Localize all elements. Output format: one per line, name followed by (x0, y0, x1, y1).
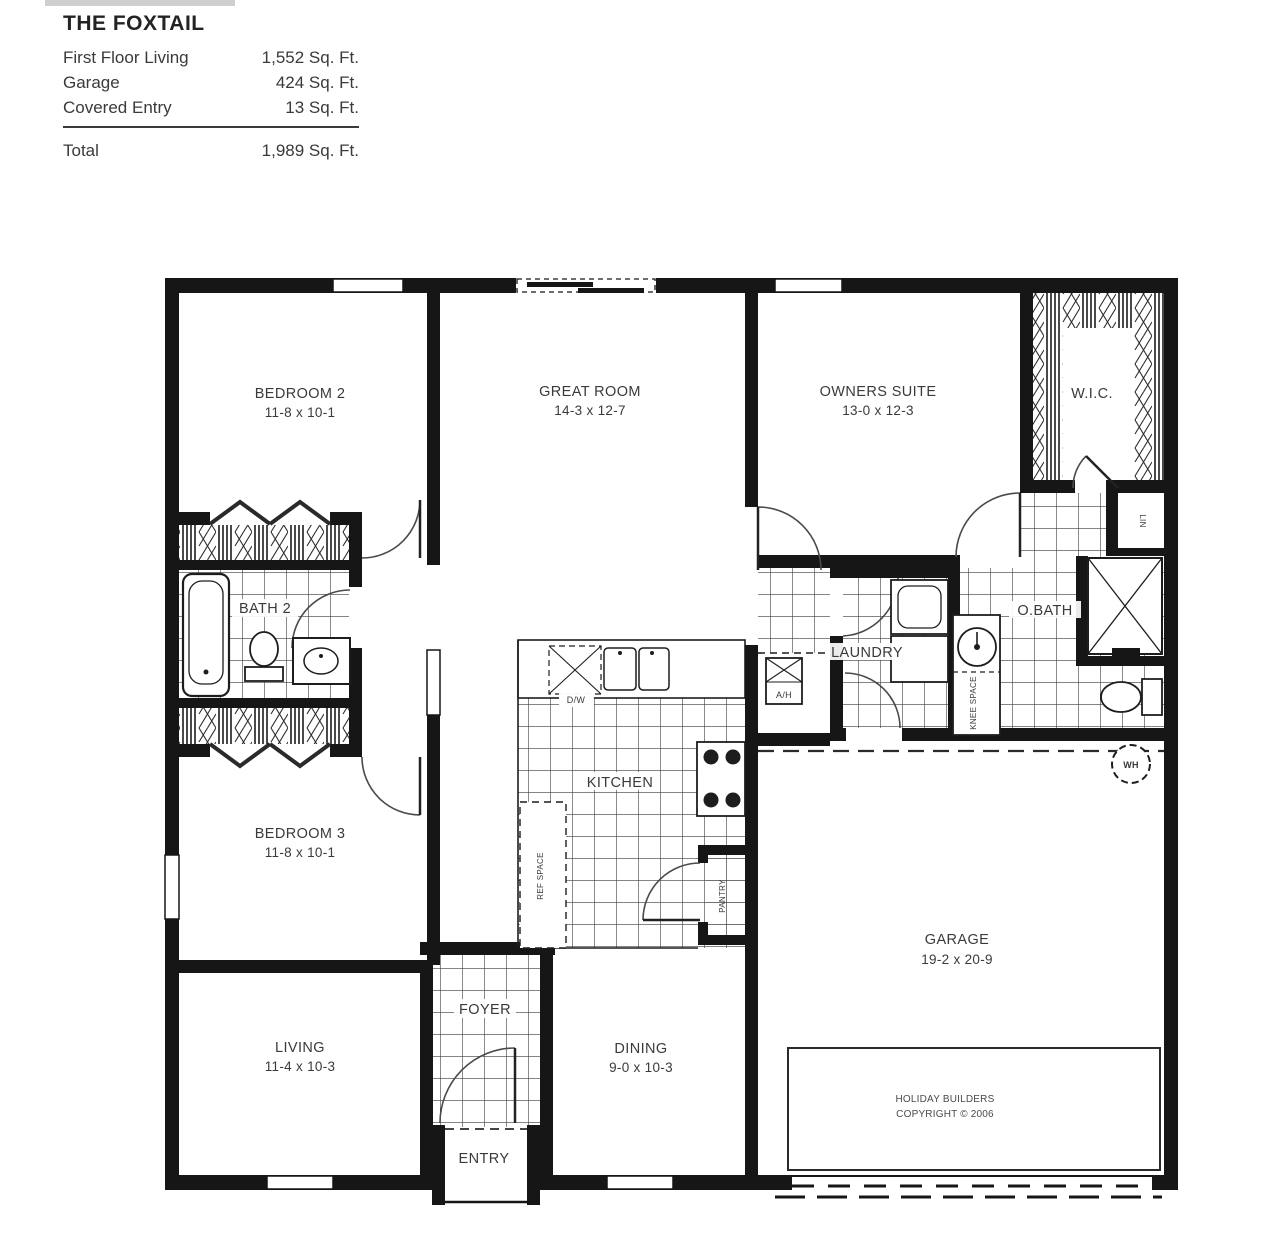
window-bedroom3 (165, 855, 179, 919)
room-label-foyer: FOYER (459, 1002, 511, 1018)
sqft-value: 424 Sq. Ft. (276, 70, 359, 95)
label-dishwasher: D/W (567, 695, 586, 705)
burner (704, 793, 719, 808)
room-dims-owners-suite: 13-0 x 12-3 (842, 403, 914, 418)
tiled-floors (178, 493, 1164, 1127)
air-handler-closet (758, 653, 830, 733)
label-water-heater: WH (1123, 760, 1139, 770)
room-label-garage: GARAGE (925, 932, 989, 948)
window-living (267, 1176, 333, 1189)
sink (304, 648, 338, 674)
floor-plan-page: THE FOXTAIL First Floor Living 1,552 Sq.… (0, 0, 1280, 1248)
sqft-label: First Floor Living (63, 45, 189, 70)
closet-hatch (178, 525, 349, 560)
sqft-row-covered-entry: Covered Entry 13 Sq. Ft. (63, 95, 359, 120)
sqft-row-living: First Floor Living 1,552 Sq. Ft. (63, 45, 359, 70)
faucet (319, 654, 323, 658)
hall-floor (758, 568, 830, 653)
toilet-bowl (250, 632, 278, 666)
room-dims-great-room: 14-3 x 12-7 (554, 403, 626, 418)
room-dims-garage: 19-2 x 20-9 (921, 952, 993, 967)
total-divider (63, 126, 359, 128)
room-dims-dining: 9-0 x 10-3 (609, 1060, 673, 1075)
burner (704, 750, 719, 765)
washer-door (898, 586, 941, 628)
window-bedroom2 (333, 279, 403, 292)
room-dims-bedroom2: 11-8 x 10-1 (265, 405, 336, 420)
door-arc-bedroom2 (362, 500, 420, 558)
label-linen: LIN (1138, 514, 1147, 527)
sink-faucet (618, 651, 622, 655)
copyright-line1: HOLIDAY BUILDERS (896, 1094, 995, 1105)
toilet-tank (245, 667, 283, 681)
room-label-great-room: GREAT ROOM (539, 384, 641, 400)
wic-shelf-right (1134, 328, 1164, 480)
room-dims-living: 11-4 x 10-3 (265, 1059, 336, 1074)
shower-curb (1112, 648, 1140, 656)
sink-faucet (650, 651, 654, 655)
tub-drain (204, 670, 209, 675)
room-label-bath2: BATH 2 (239, 601, 291, 617)
scan-artifact-bar (45, 0, 235, 6)
sqft-value: 13 Sq. Ft. (285, 95, 359, 120)
room-label-bedroom3: BEDROOM 3 (255, 826, 346, 842)
label-ref-space: REF SPACE (536, 852, 545, 899)
room-label-bedroom2: BEDROOM 2 (255, 386, 346, 402)
copyright-line2: COPYRIGHT © 2006 (896, 1109, 994, 1120)
room-label-wic: W.I.C. (1071, 386, 1113, 402)
room-label-owners-suite: OWNERS SUITE (820, 384, 937, 400)
laundry-fixtures (891, 580, 948, 682)
room-label-living: LIVING (275, 1040, 325, 1056)
sqft-row-garage: Garage 424 Sq. Ft. (63, 70, 359, 95)
owners-toilet-tank (1142, 679, 1162, 715)
total-label: Total (63, 141, 99, 161)
kitchen-sink-right (639, 648, 669, 690)
sqft-label: Garage (63, 70, 120, 95)
plan-header: THE FOXTAIL First Floor Living 1,552 Sq.… (63, 12, 359, 161)
plan-title: THE FOXTAIL (63, 12, 359, 36)
label-air-handler: A/H (776, 690, 792, 700)
sqft-label: Covered Entry (63, 95, 172, 120)
owners-hall-floor (1020, 493, 1106, 568)
garage-details (758, 745, 1164, 1197)
burner (726, 750, 741, 765)
window-owners-suite (775, 279, 842, 292)
room-label-obath: O.BATH (1017, 603, 1072, 619)
room-label-entry: ENTRY (459, 1151, 510, 1167)
floor-plan-drawing: BEDROOM 2 11-8 x 10-1 GREAT ROOM 14-3 x … (0, 0, 1280, 1248)
room-label-dining: DINING (614, 1041, 667, 1057)
sliding-glass-door (516, 278, 656, 293)
burner (726, 793, 741, 808)
total-value: 1,989 Sq. Ft. (262, 141, 359, 161)
closet-hatch (178, 708, 349, 744)
foyer-floor (433, 955, 540, 1127)
wic-shelf-top (1033, 293, 1164, 328)
bathtub-inner (189, 581, 223, 684)
door-arc-owners-hall (956, 493, 1020, 557)
label-pantry: PANTRY (718, 879, 727, 913)
window-dining (607, 1176, 673, 1189)
room-label-laundry: LAUNDRY (831, 645, 903, 661)
sqft-value: 1,552 Sq. Ft. (262, 45, 359, 70)
room-dims-bedroom3: 11-8 x 10-1 (265, 845, 336, 860)
wic-shelf-left (1033, 328, 1063, 480)
label-knee-space: KNEE SPACE (969, 676, 978, 730)
room-label-kitchen: KITCHEN (587, 775, 653, 791)
sqft-row-total: Total 1,989 Sq. Ft. (63, 141, 359, 161)
cased-opening (427, 650, 440, 715)
door-arc-bedroom3 (362, 757, 420, 815)
owners-toilet-bowl (1101, 682, 1141, 712)
